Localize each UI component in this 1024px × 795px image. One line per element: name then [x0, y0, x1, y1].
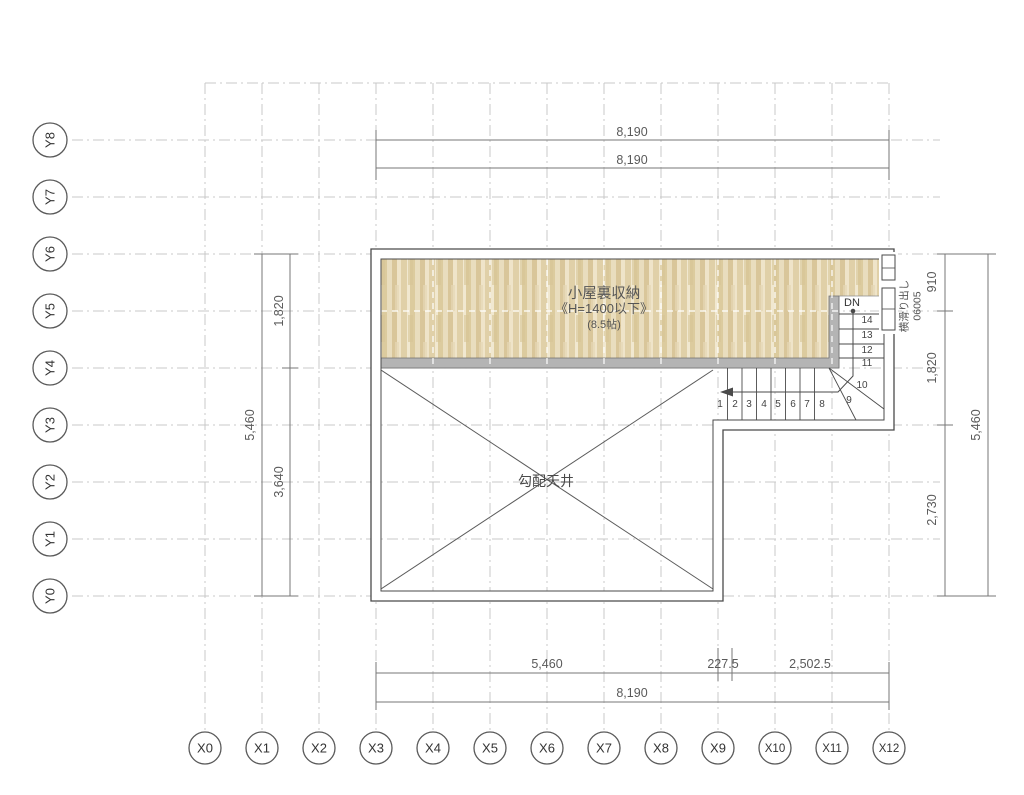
y-grid-bubbles: Y8 Y7 Y6 Y5 Y4 Y3 Y2 Y1: [33, 123, 67, 613]
grid-bubble-x5: X5: [474, 732, 506, 764]
x-grid-bubbles: X0 X1 X2 X3 X4 X5 X6 X7: [189, 732, 905, 764]
grid-label-y4: Y4: [43, 360, 58, 376]
grid-label-y5: Y5: [43, 303, 58, 319]
grid-label-x9: X9: [710, 741, 726, 756]
attic-name-label: 小屋裏収納: [568, 284, 641, 302]
dim-top-overall-1: 8,190: [616, 125, 647, 139]
step-number: 13: [861, 330, 873, 341]
floor-plan-canvas: DN 1 2 3 4 5 6 7 8 9 10 11 12 13 14 横滑り出…: [0, 0, 1024, 795]
grid-bubble-x10: X10: [759, 732, 791, 764]
grid-bubble-y0: Y0: [33, 579, 67, 613]
grid-label-x11: X11: [822, 743, 842, 755]
grid-label-x5: X5: [482, 741, 498, 756]
grid-bubble-x9: X9: [702, 732, 734, 764]
step-number: 11: [862, 358, 873, 369]
grid-bubble-x11: X11: [816, 732, 848, 764]
grid-label-y8: Y8: [43, 132, 58, 148]
dim-right-seg-3: 2,730: [925, 494, 939, 525]
grid-bubble-x4: X4: [417, 732, 449, 764]
dim-right-seg-1: 910: [925, 272, 939, 293]
grid-label-x2: X2: [311, 741, 327, 756]
grid-label-y2: Y2: [43, 474, 58, 490]
step-number: 14: [861, 315, 873, 326]
grid-label-y1: Y1: [43, 531, 58, 547]
grid-label-x8: X8: [653, 741, 669, 756]
step-number: 7: [804, 399, 810, 410]
step-number: 9: [846, 395, 852, 406]
dim-bottom-overall: 8,190: [616, 686, 647, 700]
grid-bubble-x1: X1: [246, 732, 278, 764]
dim-bottom-seg-2: 227.5: [707, 657, 738, 671]
step-number: 1: [717, 399, 723, 410]
attic-area-label: (8.5帖): [587, 318, 621, 331]
grid-label-x3: X3: [368, 741, 384, 756]
window-labels: 横滑り出し 06005: [898, 280, 924, 333]
step-number: 5: [775, 399, 781, 410]
window-size-label: 06005: [912, 291, 924, 320]
sloped-ceiling-label: 勾配天井: [518, 473, 574, 489]
grid-bubble-y1: Y1: [33, 522, 67, 556]
grid-bubble-x0: X0: [189, 732, 221, 764]
step-number: 12: [861, 345, 873, 356]
grid-bubble-y5: Y5: [33, 294, 67, 328]
dim-bottom-seg-3: 2,502.5: [789, 657, 831, 671]
attic-height-label: 《H=1400以下》: [555, 301, 653, 316]
grid-label-x10: X10: [765, 743, 785, 755]
window-symbol: [879, 252, 898, 334]
grid-bubble-y2: Y2: [33, 465, 67, 499]
grid-bubble-y4: Y4: [33, 351, 67, 385]
reference-grid: [72, 83, 940, 730]
dim-left-overall: 5,460: [243, 409, 257, 440]
dimension-right: [937, 254, 996, 596]
grid-label-x1: X1: [254, 741, 270, 756]
grid-label-y6: Y6: [43, 246, 58, 262]
grid-label-x7: X7: [596, 741, 612, 756]
stair-dn-label: DN: [844, 297, 860, 309]
step-number: 8: [819, 399, 825, 410]
step-number: 10: [856, 380, 868, 391]
grid-label-x0: X0: [197, 741, 213, 756]
step-number: 4: [761, 399, 767, 410]
step-number: 3: [746, 399, 752, 410]
dim-right-overall: 5,460: [969, 409, 983, 440]
grid-bubble-x6: X6: [531, 732, 563, 764]
grid-bubble-y3: Y3: [33, 408, 67, 442]
grid-label-y7: Y7: [43, 189, 58, 205]
grid-bubble-x2: X2: [303, 732, 335, 764]
grid-label-y3: Y3: [43, 417, 58, 433]
dim-bottom-seg-1: 5,460: [531, 657, 562, 671]
grid-bubble-x7: X7: [588, 732, 620, 764]
dim-left-seg-2: 3,640: [272, 466, 286, 497]
dim-top-overall-2: 8,190: [616, 153, 647, 167]
grid-bubble-y7: Y7: [33, 180, 67, 214]
grid-bubble-y6: Y6: [33, 237, 67, 271]
grid-label-x6: X6: [539, 741, 555, 756]
grid-bubble-x12: X12: [873, 732, 905, 764]
dim-left-seg-1: 1,820: [272, 295, 286, 326]
step-number: 2: [732, 399, 738, 410]
grid-bubble-y8: Y8: [33, 123, 67, 157]
grid-label-x4: X4: [425, 741, 441, 756]
grid-bubble-x8: X8: [645, 732, 677, 764]
step-number: 6: [790, 399, 796, 410]
grid-label-y0: Y0: [43, 588, 58, 604]
dim-right-seg-2: 1,820: [925, 352, 939, 383]
floor-plan-drawing: DN 1 2 3 4 5 6 7 8 9 10 11 12 13 14 横滑り出…: [0, 0, 1024, 795]
grid-bubble-x3: X3: [360, 732, 392, 764]
grid-label-x12: X12: [879, 743, 899, 755]
window-type-label: 横滑り出し: [898, 280, 911, 333]
down-arrow-icon: [720, 388, 733, 397]
